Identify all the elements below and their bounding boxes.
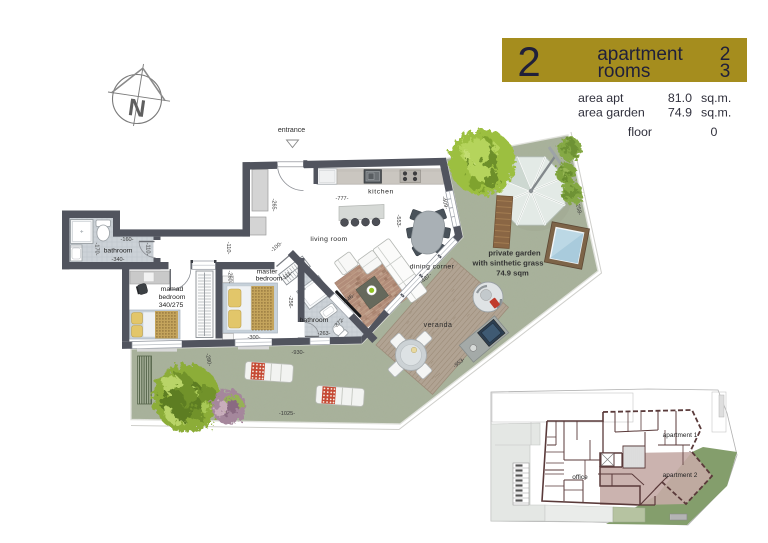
svg-text:-170-: -170- — [94, 242, 100, 255]
svg-text:74.9: 74.9 — [668, 106, 692, 120]
svg-text:master: master — [257, 269, 279, 276]
svg-text:mamad: mamad — [161, 286, 184, 293]
svg-text:sq.m.: sq.m. — [701, 106, 731, 120]
svg-text:N: N — [126, 94, 147, 123]
svg-text:-110-: -110- — [145, 243, 151, 256]
svg-text:-110-: -110- — [225, 242, 231, 255]
svg-text:office: office — [572, 474, 588, 481]
svg-text:-256-: -256- — [287, 295, 293, 308]
svg-text:apartment 2: apartment 2 — [663, 472, 698, 479]
svg-text:private garden: private garden — [488, 249, 541, 258]
svg-text:sq.m.: sq.m. — [701, 91, 731, 105]
svg-text:living room: living room — [310, 236, 347, 243]
svg-text:-300-: -300- — [247, 335, 260, 341]
svg-text:with sinthetic grass: with sinthetic grass — [472, 259, 544, 268]
svg-text:bedroom: bedroom — [159, 294, 186, 301]
svg-text:-263-: -263- — [317, 331, 330, 337]
svg-text:rooms: rooms — [598, 61, 651, 82]
svg-text:area garden: area garden — [578, 106, 645, 120]
svg-text:74.9 sqm: 74.9 sqm — [496, 268, 529, 277]
svg-text:-260-: -260- — [227, 270, 233, 283]
svg-text:kitchen: kitchen — [368, 189, 394, 196]
svg-text:0: 0 — [711, 125, 718, 139]
svg-text:bedroom: bedroom — [256, 276, 283, 283]
svg-text:-160-: -160- — [120, 237, 133, 243]
svg-text:-265-: -265- — [271, 198, 277, 211]
svg-text:apartment 1: apartment 1 — [663, 432, 698, 439]
svg-text:-1025-: -1025- — [279, 411, 295, 417]
svg-text:2: 2 — [517, 38, 540, 85]
svg-text:81.0: 81.0 — [668, 91, 692, 105]
svg-text:floor: floor — [628, 125, 652, 139]
svg-text:-777-: -777- — [335, 196, 348, 202]
svg-text:dining corner: dining corner — [410, 264, 455, 271]
svg-text:3: 3 — [720, 61, 731, 82]
svg-text:-340-: -340- — [111, 257, 124, 263]
svg-text:-930-: -930- — [291, 350, 304, 356]
svg-text:340/275: 340/275 — [159, 302, 184, 309]
svg-text:veranda: veranda — [424, 322, 453, 329]
svg-text:bathroom: bathroom — [300, 317, 329, 324]
svg-text:-553-: -553- — [395, 214, 401, 227]
svg-text:entrance: entrance — [278, 127, 305, 134]
svg-text:bathroom: bathroom — [104, 248, 133, 255]
svg-text:area apt: area apt — [578, 91, 624, 105]
